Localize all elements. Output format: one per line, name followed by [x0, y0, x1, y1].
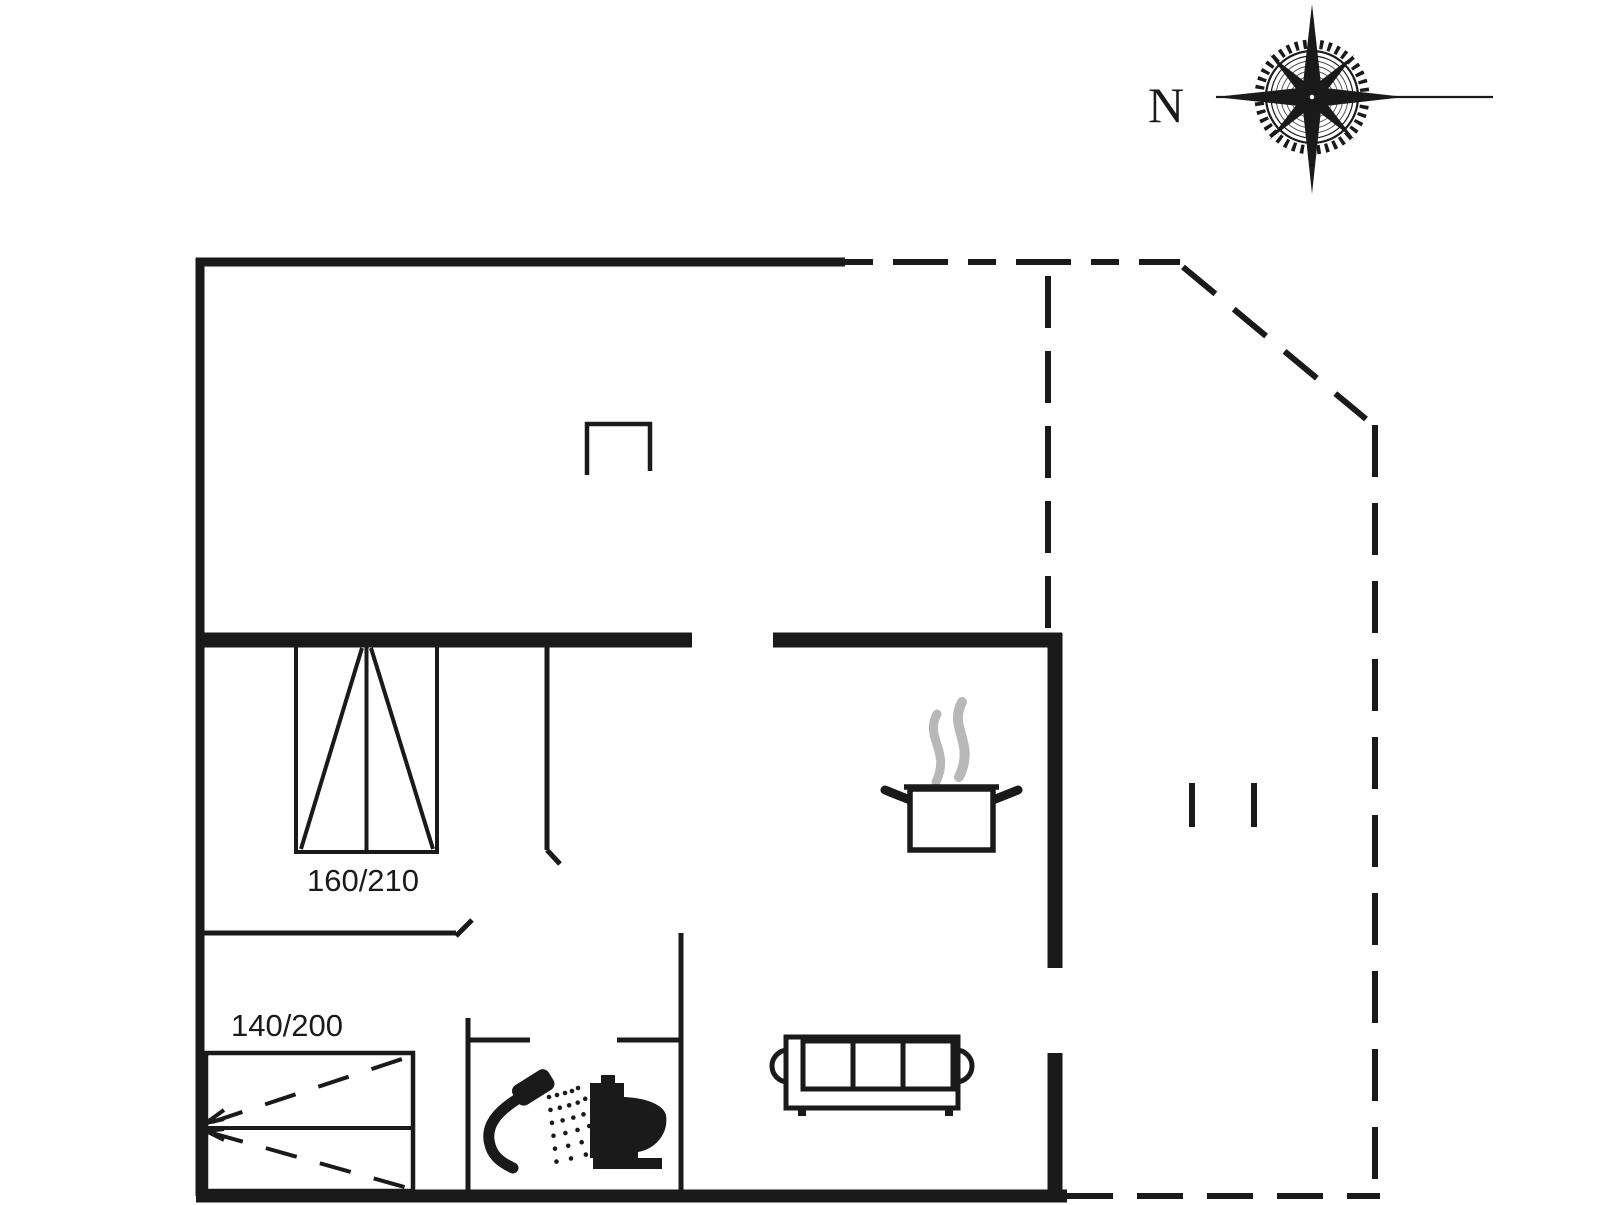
dashed-diagonal	[1183, 267, 1366, 419]
sofa-foot-left	[798, 1106, 806, 1116]
door-tick-bunkroom	[456, 920, 472, 936]
double-bed-icon	[296, 645, 437, 852]
steam-icon	[933, 714, 940, 782]
bunk-arrow-top	[206, 1110, 224, 1123]
door-tick-bedroom	[547, 850, 560, 864]
pot-handle-right	[993, 790, 1018, 800]
compass-center	[1309, 94, 1315, 100]
bunk-bed-icon	[206, 1053, 413, 1191]
bunk-diagonal-top	[212, 1057, 408, 1122]
toilet-icon	[590, 1075, 666, 1169]
sofa-foot-right	[945, 1106, 953, 1116]
bunk-outline	[206, 1053, 413, 1191]
compass-rose-icon	[1215, 4, 1493, 194]
bunk-bed-size-label: 140/200	[231, 1008, 343, 1043]
compass-north-label: N	[1148, 77, 1184, 133]
bunk-diagonal-bottom	[212, 1133, 408, 1188]
shower-spray	[549, 1097, 557, 1166]
chimney-icon	[587, 424, 650, 475]
double-bed-size-label: 160/210	[307, 863, 419, 898]
bed-diagonal-left	[301, 648, 362, 849]
pot-body	[910, 789, 993, 850]
bed-diagonal-right	[371, 648, 433, 849]
sofa-icon	[772, 1037, 972, 1116]
shower-hose	[489, 1098, 519, 1168]
steam-icon	[958, 702, 965, 777]
cooking-pot-icon	[885, 702, 1018, 850]
pot-handle-left	[885, 790, 910, 800]
terrace-opening-ticks	[1192, 783, 1254, 827]
sofa-body	[786, 1037, 958, 1108]
floor-plan: 160/210 140/200	[0, 0, 1606, 1205]
